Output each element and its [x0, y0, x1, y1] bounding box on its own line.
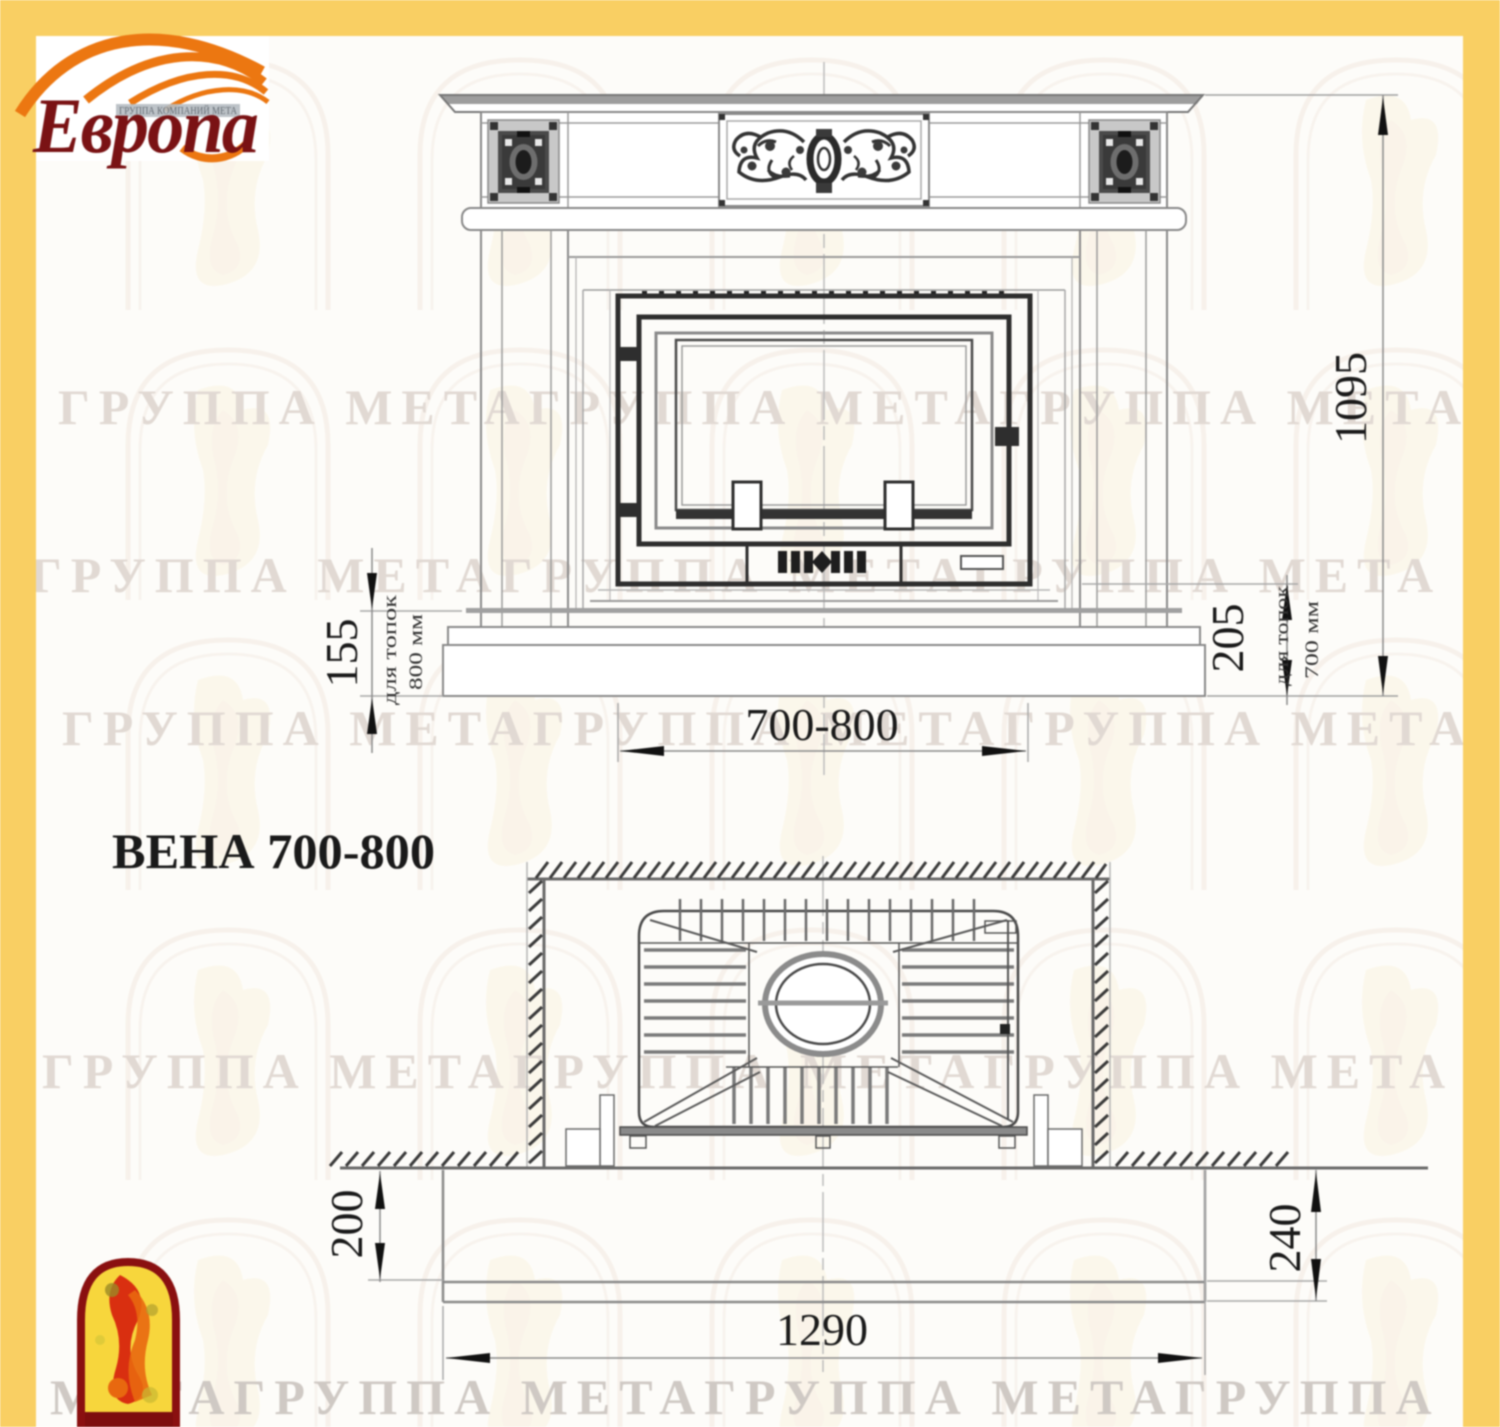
svg-text:ГРУППА МЕТАГРУППА МЕТАГРУППА М: ГРУППА МЕТАГРУППА МЕТАГРУППА МЕТА	[42, 1043, 1454, 1099]
svg-text:240: 240	[1259, 1204, 1310, 1273]
svg-text:ГРУППА МЕТАГРУППА МЕТАГРУППА М: ГРУППА МЕТАГРУППА МЕТАГРУППА МЕТА	[30, 547, 1442, 603]
svg-text:700-800: 700-800	[745, 699, 898, 750]
svg-text:для топок: для топок	[380, 594, 401, 705]
svg-text:Европа: Европа	[32, 82, 258, 169]
svg-text:700 мм: 700 мм	[1302, 601, 1323, 679]
svg-text:ГРУППА МЕТАГРУППА МЕТАГРУППА М: ГРУППА МЕТАГРУППА МЕТАГРУППА МЕТА	[58, 379, 1470, 435]
svg-text:800 мм: 800 мм	[406, 614, 427, 690]
svg-text:200: 200	[321, 1190, 372, 1259]
svg-text:МЕТАГРУППА МЕТАГРУППА МЕТАГРУП: МЕТАГРУППА МЕТАГРУППА МЕТАГРУППА	[50, 1369, 1441, 1425]
svg-text:ВЕНА 700-800: ВЕНА 700-800	[112, 823, 435, 879]
svg-text:155: 155	[316, 619, 367, 688]
svg-text:205: 205	[1202, 604, 1253, 673]
svg-text:1290: 1290	[776, 1304, 868, 1355]
svg-text:для топок: для топок	[1272, 585, 1293, 686]
svg-text:1095: 1095	[1325, 352, 1376, 444]
